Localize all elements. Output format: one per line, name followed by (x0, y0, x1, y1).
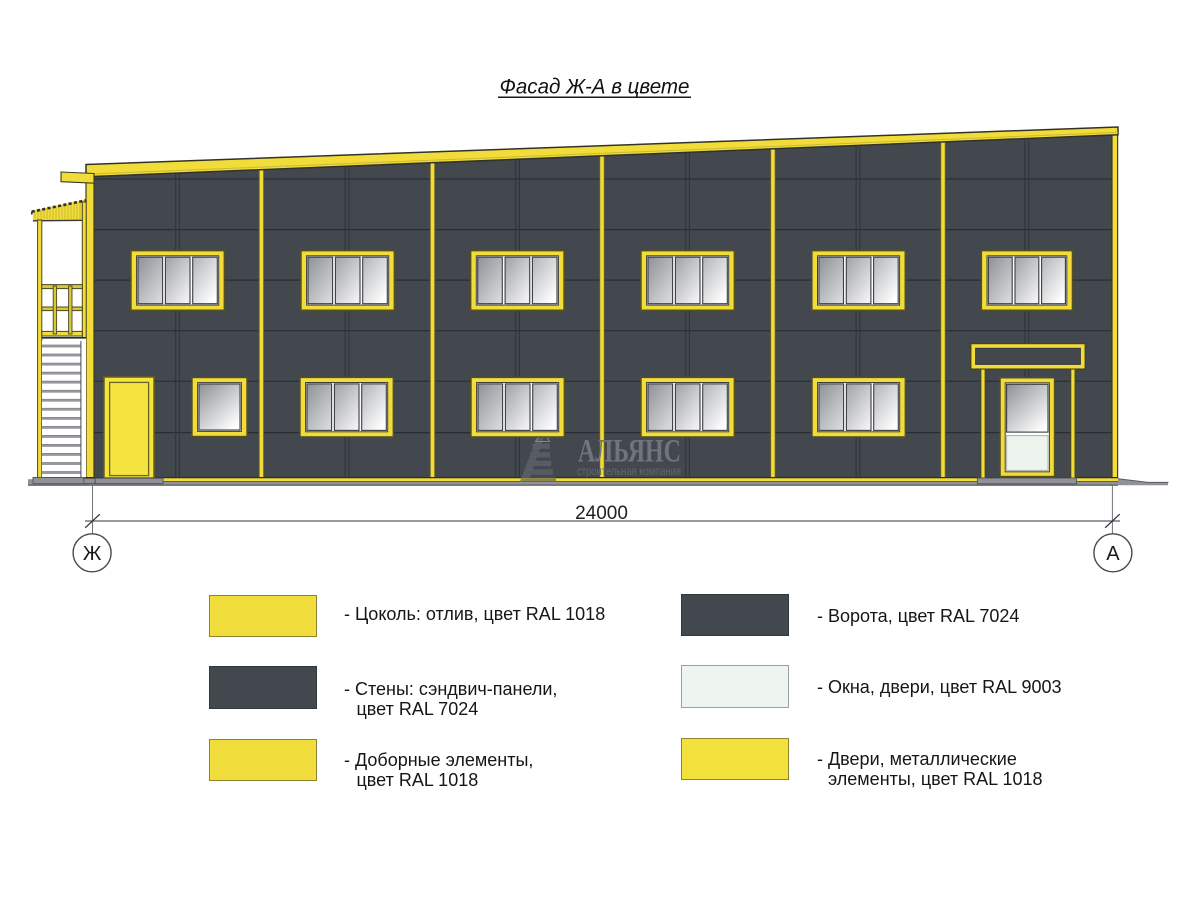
svg-text:строительная компания: строительная компания (577, 465, 681, 478)
svg-text:А: А (1106, 543, 1120, 565)
svg-text:Ж: Ж (83, 543, 102, 565)
svg-text:24000: 24000 (575, 503, 628, 524)
svg-text:Фасад Ж-А в цвете: Фасад Ж-А в цвете (500, 75, 690, 98)
